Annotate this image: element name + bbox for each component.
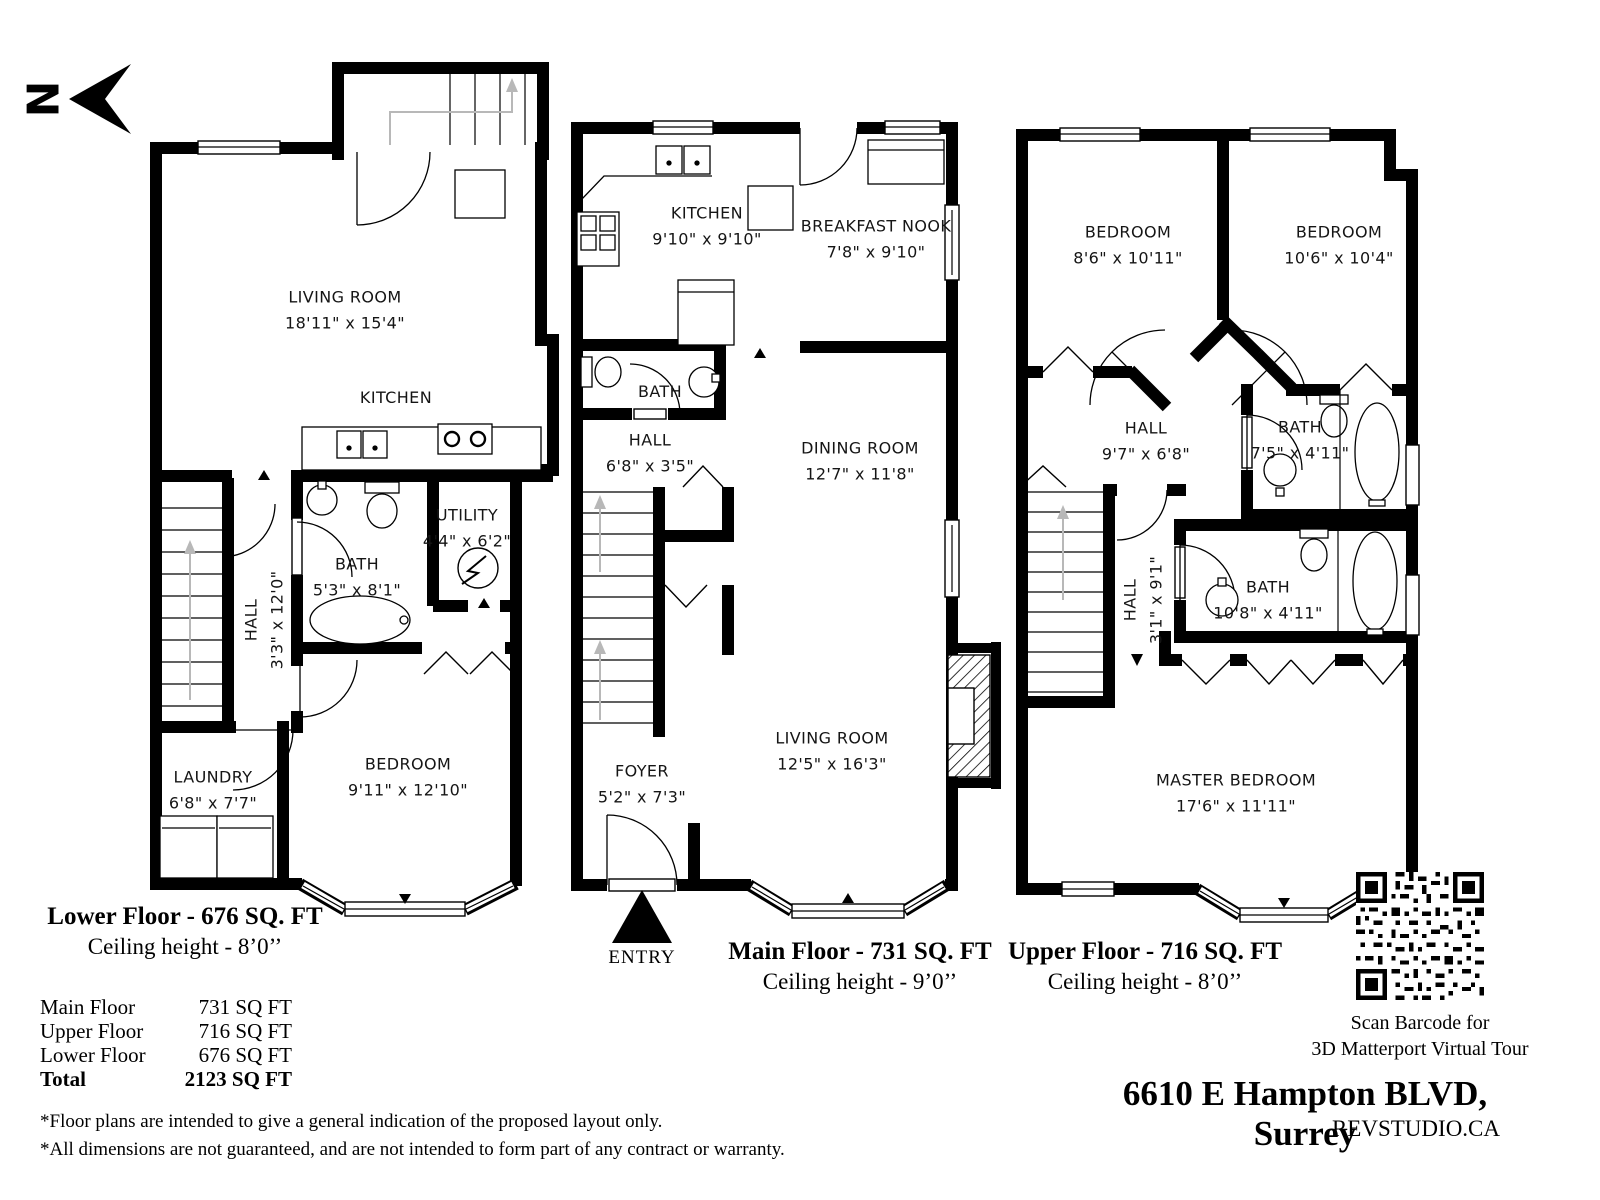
entry-label: ENTRY [608,947,675,969]
room-label-main-foyer: FOYER 5'2" x 7'3" [598,758,686,809]
main-floor-title: Main Floor - 731 SQ. FT [700,938,1020,966]
room-label-upper-bath1: BATH 7'5" x 4'11" [1251,414,1350,465]
north-label: N [22,81,66,118]
upper-floor-title: Upper Floor - 716 SQ. FT [985,938,1305,966]
north-arrow-icon [63,60,137,138]
lower-floor-caption: Lower Floor - 676 SQ. FT Ceiling height … [40,903,330,960]
room-label-main-bath: BATH [638,379,682,405]
room-label-upper-bath2: BATH 10'8" x 4'11" [1213,574,1322,625]
summary-total-row: Total 2123 SQ FT [40,1068,292,1092]
entry-arrow [612,890,672,943]
room-label-main-nook: BREAKFAST NOOK 7'8" x 9'10" [801,213,952,264]
qr-code [1356,872,1484,1000]
summary-row: Upper Floor 716 SQ FT [40,1020,292,1044]
qr-block: Scan Barcode for 3D Matterport Virtual T… [1288,872,1552,1062]
room-label-upper-hall1: HALL 9'7" x 6'8" [1102,415,1190,466]
upper-stairs [1028,492,1103,692]
main-fireplace [948,655,990,777]
lower-closet-chevrons [424,652,514,674]
room-label-lower-laundry: LAUNDRY 6'8" x 7'7" [169,764,257,815]
room-label-main-dining: DINING ROOM 12'7" x 11'8" [801,435,919,486]
main-floor-ceiling: Ceiling height - 9’0’’ [700,969,1020,995]
room-label-upper-bedroom2: BEDROOM 10'6" x 10'4" [1284,219,1393,270]
room-label-upper-master: MASTER BEDROOM 17'6" x 11'11" [1156,767,1316,818]
room-label-main-living: LIVING ROOM 12'5" x 16'3" [775,725,888,776]
room-label-main-hall: HALL 6'8" x 3'5" [606,427,694,478]
room-label-lower-hall: HALL 3'3" x 12'0" [238,571,289,670]
disclaimer-text: *Floor plans are intended to give a gene… [40,1108,785,1163]
room-label-upper-hall2: HALL 3'1" x 9'1" [1117,556,1168,644]
main-floor-caption: Main Floor - 731 SQ. FT Ceiling height -… [700,938,1020,995]
lower-right-wall [510,142,559,886]
room-label-lower-living: LIVING ROOM 18'11" x 15'4" [285,284,405,335]
lower-windows [198,141,302,575]
address: 6610 E Hampton BLVD, Surrey [1090,1074,1520,1154]
qr-caption: Scan Barcode for 3D Matterport Virtual T… [1288,1010,1552,1062]
lower-bay-window [300,884,516,916]
lower-floor-ceiling: Ceiling height - 8’0’’ [40,934,330,960]
summary-row: Main Floor 731 SQ FT [40,996,292,1020]
lower-washer-dryer [160,816,273,878]
lower-floor-title: Lower Floor - 676 SQ. FT [40,903,330,931]
floorplan-page: LIVING ROOM 18'11" x 15'4" KITCHEN BATH … [0,0,1600,1200]
main-stairs [583,492,653,723]
lower-electrical-panel [458,548,498,588]
summary-row: Lower Floor 676 SQ FT [40,1044,292,1068]
brand: REVSTUDIO.CA [1100,1116,1500,1142]
room-label-lower-kitchen: KITCHEN [360,385,432,411]
room-label-lower-bedroom: BEDROOM 9'11" x 12'10" [348,751,468,802]
upper-floor-ceiling: Ceiling height - 8’0’’ [985,969,1305,995]
area-summary-table: Main Floor 731 SQ FT Upper Floor 716 SQ … [40,996,292,1092]
room-label-upper-bedroom1: BEDROOM 8'6" x 10'11" [1073,219,1182,270]
room-label-lower-bath: BATH 5'3" x 8'1" [313,551,401,602]
room-label-main-kitchen: KITCHEN 9'10" x 9'10" [652,200,761,251]
north-indicator: N [26,60,137,138]
room-label-lower-utility: UTILITY 4'4" x 6'2" [423,502,511,553]
upper-floor-caption: Upper Floor - 716 SQ. FT Ceiling height … [985,938,1305,995]
